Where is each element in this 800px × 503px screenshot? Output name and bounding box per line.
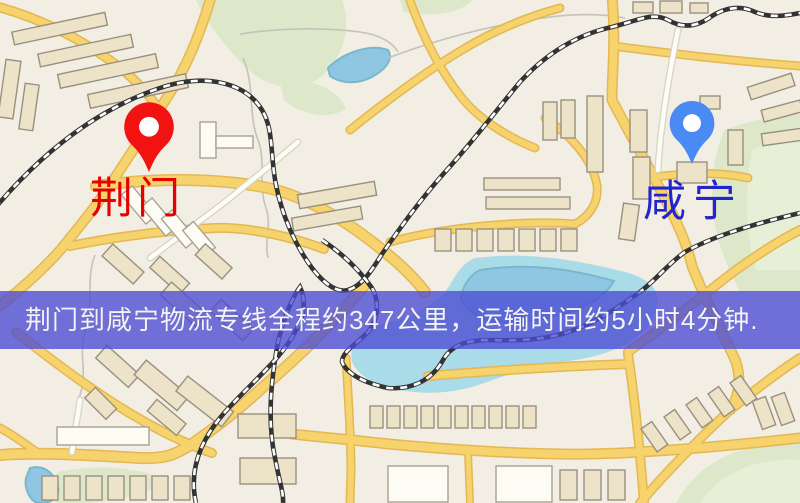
destination-city-label: 咸宁 [643, 181, 743, 224]
pin-hole [139, 117, 159, 137]
map-artwork [0, 0, 800, 503]
logistics-route-map: 荆门 咸宁 荆门到咸宁物流专线全程约347公里，运输时间约5小时4分钟. [0, 0, 800, 503]
pin-hole [683, 114, 701, 132]
map-pin-icon [670, 101, 715, 164]
route-info-banner: 荆门到咸宁物流专线全程约347公里，运输时间约5小时4分钟. [0, 291, 800, 349]
destination-pin[interactable] [670, 101, 715, 164]
route-info-text: 荆门到咸宁物流专线全程约347公里，运输时间约5小时4分钟. [25, 307, 759, 333]
buildings [0, 1, 800, 502]
origin-city-label: 荆门 [90, 178, 184, 221]
